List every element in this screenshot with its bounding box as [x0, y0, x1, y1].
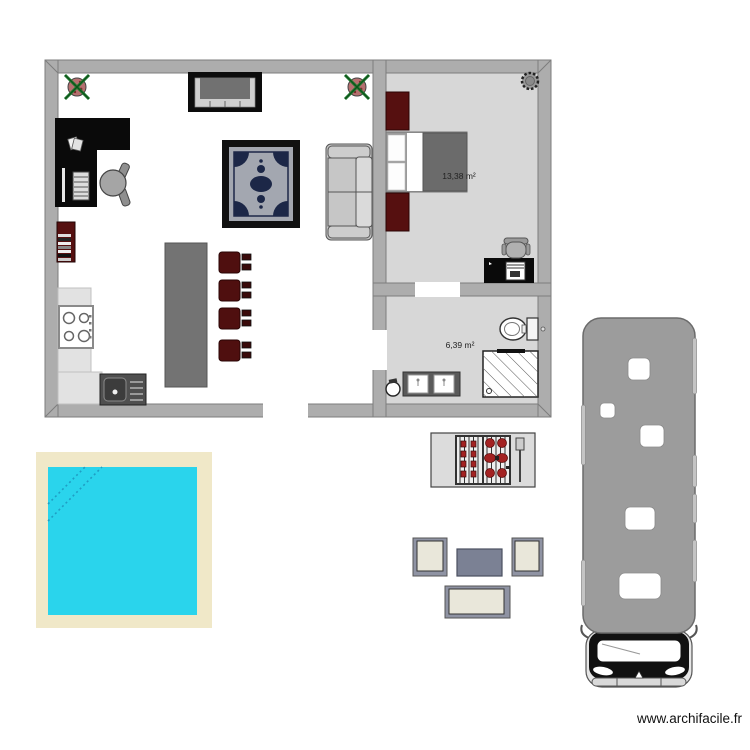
- bathroom-area-label: 6,39 m²: [446, 340, 475, 350]
- floor-plan-drawing: 13,38 m² 6,39 m²: [0, 0, 750, 750]
- cooktop[interactable]: [59, 306, 93, 348]
- motorhome-cab: [586, 630, 692, 687]
- kitchen-island[interactable]: [165, 243, 207, 387]
- garden-sofa[interactable]: [445, 586, 510, 618]
- bbq-grill[interactable]: [431, 433, 535, 487]
- garden-armchair[interactable]: [413, 538, 447, 576]
- monitor-icon: [62, 168, 65, 202]
- rug[interactable]: [222, 140, 300, 228]
- double-bed[interactable]: [386, 132, 467, 192]
- potted-plant-icon[interactable]: [65, 75, 89, 99]
- door-opening-living[interactable]: [263, 403, 308, 418]
- bookshelf[interactable]: [57, 222, 75, 262]
- swimming-pool[interactable]: [36, 452, 212, 628]
- wall-divider-horizontal[interactable]: [373, 283, 551, 296]
- ceiling-fan-icon[interactable]: [522, 73, 538, 89]
- shower[interactable]: [483, 349, 538, 397]
- potted-plant-icon[interactable]: [345, 75, 369, 99]
- door-opening-bedroom[interactable]: [415, 282, 460, 297]
- keyboard-icon: [73, 172, 89, 200]
- kitchen-counter[interactable]: [58, 372, 102, 404]
- archifacile-watermark-link[interactable]: www.archifacile.fr: [636, 711, 743, 726]
- wall-top[interactable]: [45, 60, 551, 73]
- tv-sideboard[interactable]: [188, 72, 262, 112]
- wardrobe[interactable]: [386, 193, 409, 231]
- wall-right[interactable]: [538, 60, 551, 417]
- floor-plan-canvas: 13,38 m² 6,39 m²: [0, 0, 750, 750]
- door-opening-bathroom[interactable]: [372, 330, 387, 370]
- bedroom-area-label: 13,38 m²: [442, 171, 476, 181]
- wall-left[interactable]: [45, 60, 58, 417]
- kitchen-sink[interactable]: [100, 374, 146, 405]
- sofa[interactable]: [326, 144, 372, 240]
- double-vanity[interactable]: [403, 372, 460, 396]
- wardrobe[interactable]: [386, 92, 409, 130]
- motorhome[interactable]: [581, 318, 696, 687]
- toilet[interactable]: [500, 318, 545, 340]
- garden-armchair[interactable]: [512, 538, 543, 576]
- garden-table[interactable]: [457, 549, 502, 576]
- bedroom-desk[interactable]: [484, 258, 534, 283]
- garden-furniture-set: [413, 538, 543, 618]
